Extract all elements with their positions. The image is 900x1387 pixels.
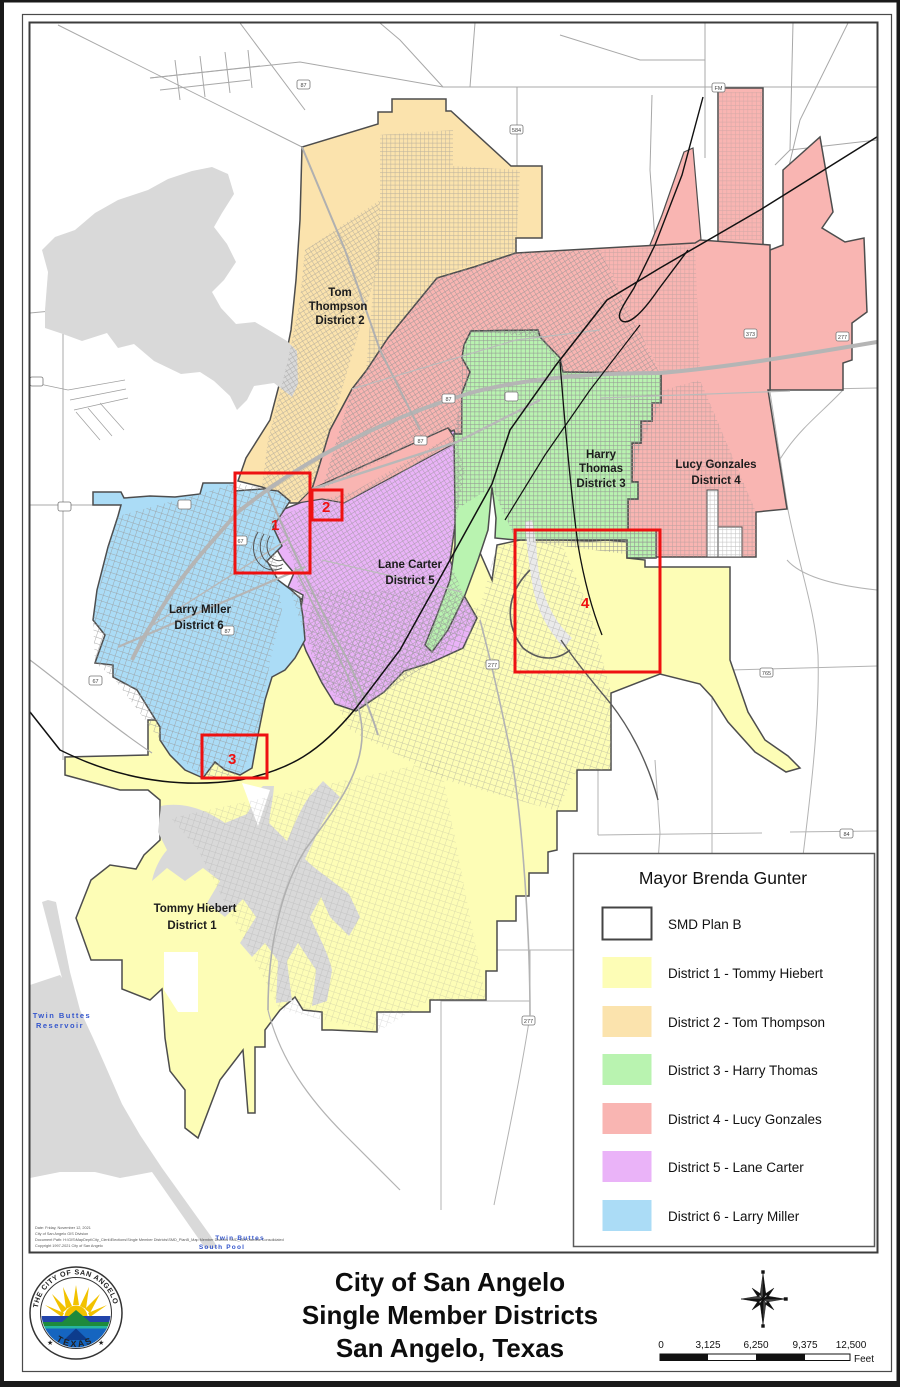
svg-text:FM: FM bbox=[715, 86, 723, 92]
svg-text:1: 1 bbox=[271, 517, 279, 534]
svg-text:3,125: 3,125 bbox=[695, 1340, 720, 1351]
svg-text:Reservoir: Reservoir bbox=[36, 1021, 84, 1030]
svg-text:★: ★ bbox=[47, 1339, 53, 1347]
svg-text:Single Member Districts: Single Member Districts bbox=[302, 1300, 598, 1330]
svg-text:District 5 - Lane Carter: District 5 - Lane Carter bbox=[668, 1160, 804, 1175]
svg-text:9,375: 9,375 bbox=[792, 1340, 817, 1351]
svg-text:Tommy Hiebert: Tommy Hiebert bbox=[154, 903, 237, 915]
svg-text:SMD Plan B: SMD Plan B bbox=[668, 917, 742, 932]
svg-text:2: 2 bbox=[322, 499, 330, 516]
svg-text:87: 87 bbox=[417, 439, 423, 445]
svg-text:City of San Angelo GIS Divisio: City of San Angelo GIS Division bbox=[35, 1232, 88, 1236]
svg-text:12,500: 12,500 bbox=[836, 1340, 867, 1351]
svg-text:Date: Friday, November 12, 202: Date: Friday, November 12, 2021 bbox=[35, 1226, 91, 1230]
svg-text:District 1: District 1 bbox=[167, 920, 217, 932]
svg-text:Harry: Harry bbox=[586, 449, 617, 461]
svg-text:Copyright 1997-2021 City of Sa: Copyright 1997-2021 City of San Angelo bbox=[35, 1244, 103, 1248]
svg-text:District 6: District 6 bbox=[174, 620, 223, 632]
svg-text:67: 67 bbox=[92, 679, 98, 685]
svg-text:City of San Angelo: City of San Angelo bbox=[335, 1267, 565, 1297]
svg-text:373: 373 bbox=[746, 332, 755, 338]
svg-text:District 3: District 3 bbox=[576, 478, 625, 490]
svg-text:South Pool: South Pool bbox=[199, 1244, 245, 1251]
svg-text:★: ★ bbox=[98, 1339, 104, 1347]
svg-text:Larry Miller: Larry Miller bbox=[169, 604, 232, 616]
svg-text:District 2 - Tom Thompson: District 2 - Tom Thompson bbox=[668, 1015, 825, 1030]
svg-text:District 6 - Larry Miller: District 6 - Larry Miller bbox=[668, 1209, 800, 1224]
svg-text:277: 277 bbox=[488, 663, 497, 669]
svg-text:District 1 - Tommy Hiebert: District 1 - Tommy Hiebert bbox=[668, 966, 823, 981]
svg-text:765: 765 bbox=[762, 671, 771, 677]
svg-text:0: 0 bbox=[658, 1340, 664, 1351]
svg-text:District 5: District 5 bbox=[385, 575, 435, 587]
svg-text:Tom: Tom bbox=[328, 287, 351, 299]
svg-text:Twin Buttes: Twin Buttes bbox=[33, 1011, 91, 1020]
svg-text:Thompson: Thompson bbox=[309, 301, 368, 313]
svg-text:3: 3 bbox=[228, 751, 236, 768]
svg-text:Lucy Gonzales: Lucy Gonzales bbox=[675, 459, 756, 471]
svg-text:Feet: Feet bbox=[854, 1354, 874, 1365]
svg-text:Thomas: Thomas bbox=[579, 463, 623, 475]
svg-text:84: 84 bbox=[843, 832, 849, 838]
svg-text:District 3 - Harry Thomas: District 3 - Harry Thomas bbox=[668, 1063, 818, 1078]
svg-text:District 2: District 2 bbox=[315, 315, 364, 327]
svg-text:Lane Carter: Lane Carter bbox=[378, 559, 442, 571]
svg-text:87: 87 bbox=[300, 83, 306, 89]
svg-text:Document Path: H:\GIS\MapDept\: Document Path: H:\GIS\MapDept\City_Clerk… bbox=[35, 1238, 284, 1242]
svg-text:277: 277 bbox=[838, 335, 847, 341]
svg-text:87: 87 bbox=[224, 629, 230, 635]
svg-text:584: 584 bbox=[512, 128, 521, 134]
svg-text:6,250: 6,250 bbox=[743, 1340, 768, 1351]
svg-text:277: 277 bbox=[524, 1019, 533, 1025]
svg-text:Mayor Brenda Gunter: Mayor Brenda Gunter bbox=[639, 868, 807, 888]
svg-text:San Angelo, Texas: San Angelo, Texas bbox=[336, 1333, 564, 1363]
svg-text:District 4: District 4 bbox=[691, 475, 741, 487]
svg-text:87: 87 bbox=[445, 397, 451, 403]
svg-text:67: 67 bbox=[237, 539, 243, 545]
svg-text:4: 4 bbox=[581, 595, 590, 612]
svg-text:District 4 - Lucy Gonzales: District 4 - Lucy Gonzales bbox=[668, 1112, 822, 1127]
